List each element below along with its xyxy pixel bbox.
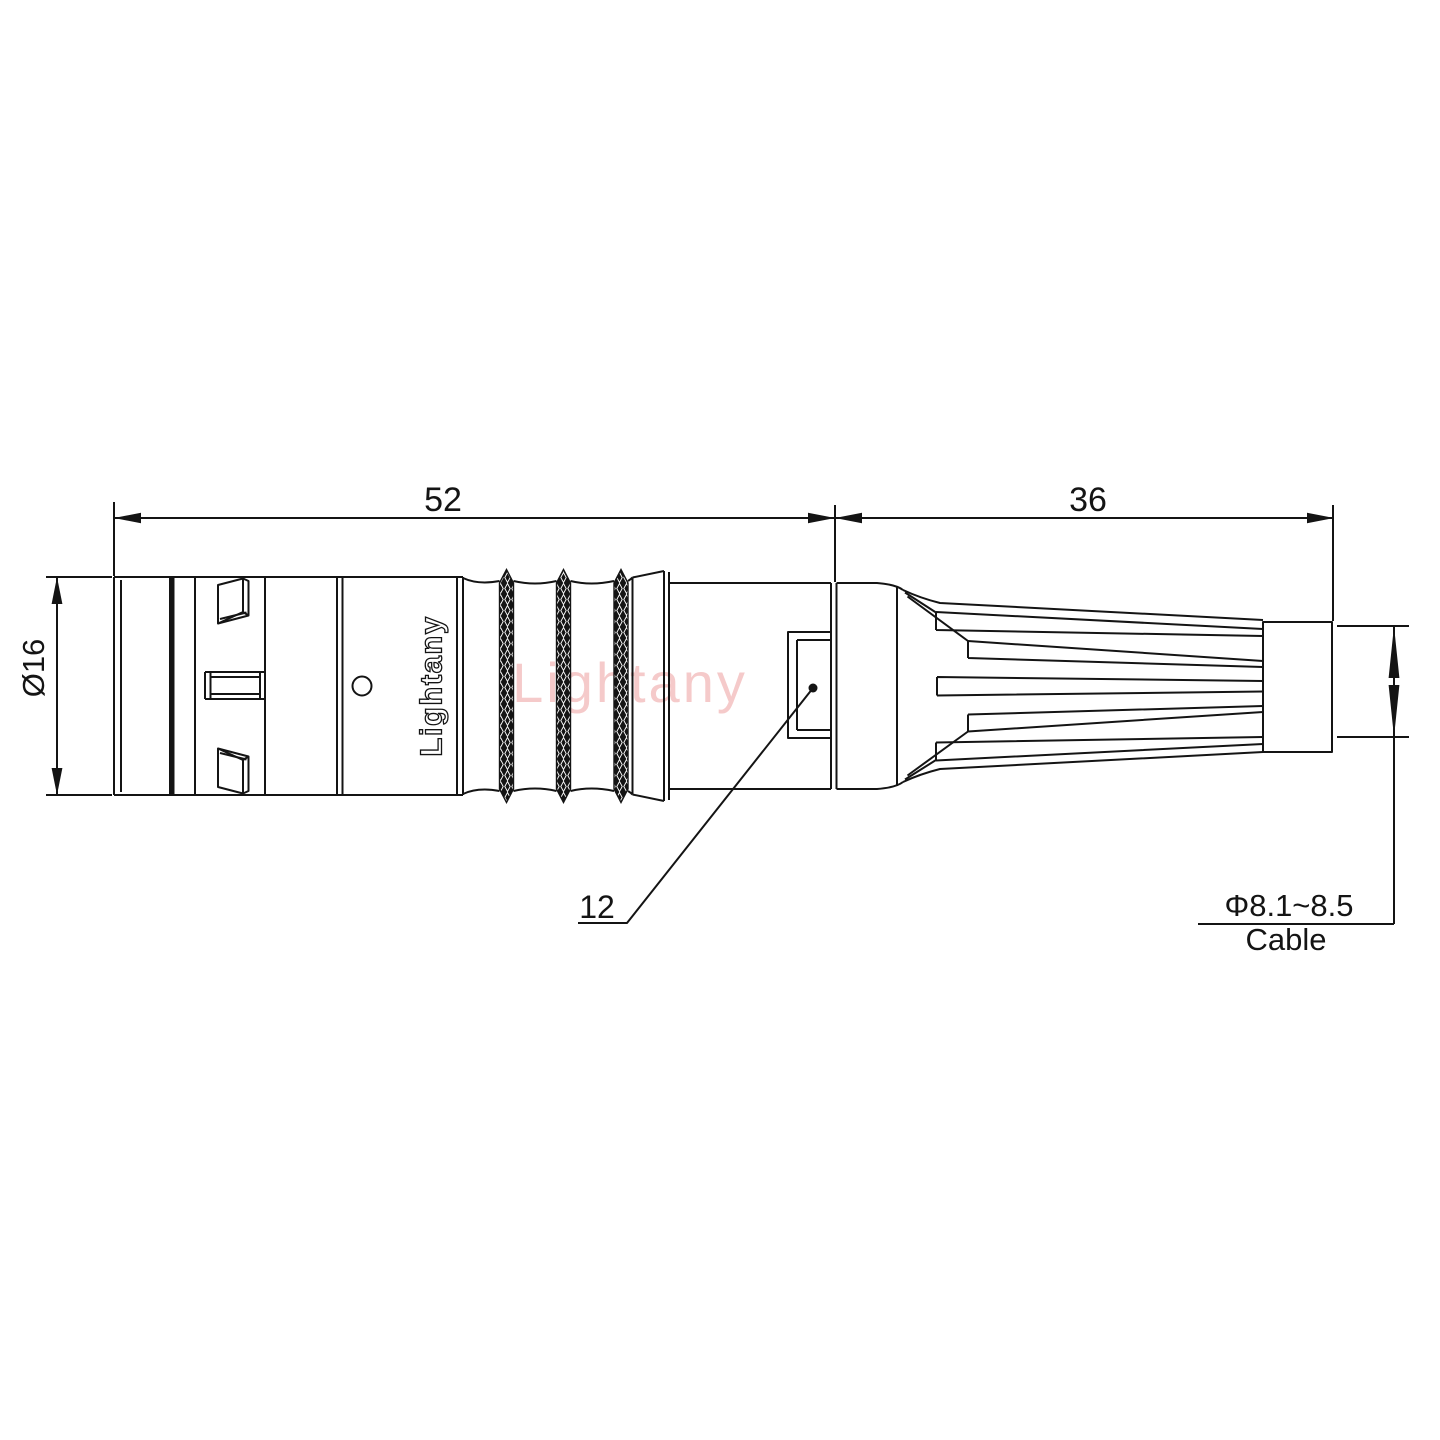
boot-ribs — [936, 612, 1263, 761]
dimension-annotations: 52 36 Ø16 12 Φ8.1~8.5 Cable — [16, 481, 1409, 957]
boot-bottom-silhouette — [903, 752, 1263, 782]
dim-front-length-label: 52 — [424, 481, 462, 519]
dim-latch-sleeve-label: 12 — [579, 889, 615, 925]
latch-hook-bottom — [218, 749, 249, 794]
knurl-ring-2 — [557, 570, 571, 803]
dim-body-diameter-label: Ø16 — [16, 639, 51, 698]
arrowhead — [52, 768, 63, 795]
connector-mid-body: Lightany — [353, 577, 464, 795]
alignment-hole — [353, 677, 372, 696]
strain-relief-boot — [837, 583, 1333, 789]
connector-release-sleeve — [114, 577, 463, 795]
arrowhead — [1389, 626, 1400, 678]
knurl-ring-3 — [614, 570, 628, 803]
brand-text: Lightany — [414, 615, 449, 756]
knurl-ring-1 — [500, 570, 514, 803]
boot-top-silhouette — [903, 590, 1263, 620]
leader-line-12 — [578, 688, 813, 923]
cable-clamp-window — [788, 632, 831, 738]
arrowhead — [114, 513, 141, 524]
cable-label: Cable — [1246, 922, 1327, 957]
cable-dim-lines — [1198, 626, 1409, 924]
arrowhead — [835, 513, 862, 524]
dim-boot-length-label: 36 — [1069, 481, 1107, 519]
drawing-page: Lightany Lightany — [0, 0, 1440, 1440]
arrowhead — [52, 577, 63, 604]
dim-cable-diameter-label: Φ8.1~8.5 — [1224, 888, 1353, 923]
latch-hook-top — [218, 579, 249, 624]
arrowhead — [1307, 513, 1334, 524]
cable-exit-end — [1263, 622, 1332, 752]
watermark-text: Lightany — [512, 651, 748, 714]
connector-technical-drawing: Lightany Lightany — [0, 0, 1440, 1440]
arrowhead — [1389, 685, 1400, 737]
arrowhead — [808, 513, 835, 524]
latch-slot — [205, 672, 265, 699]
sleeve-groove-band — [169, 577, 175, 795]
front-body-outline — [114, 577, 463, 795]
